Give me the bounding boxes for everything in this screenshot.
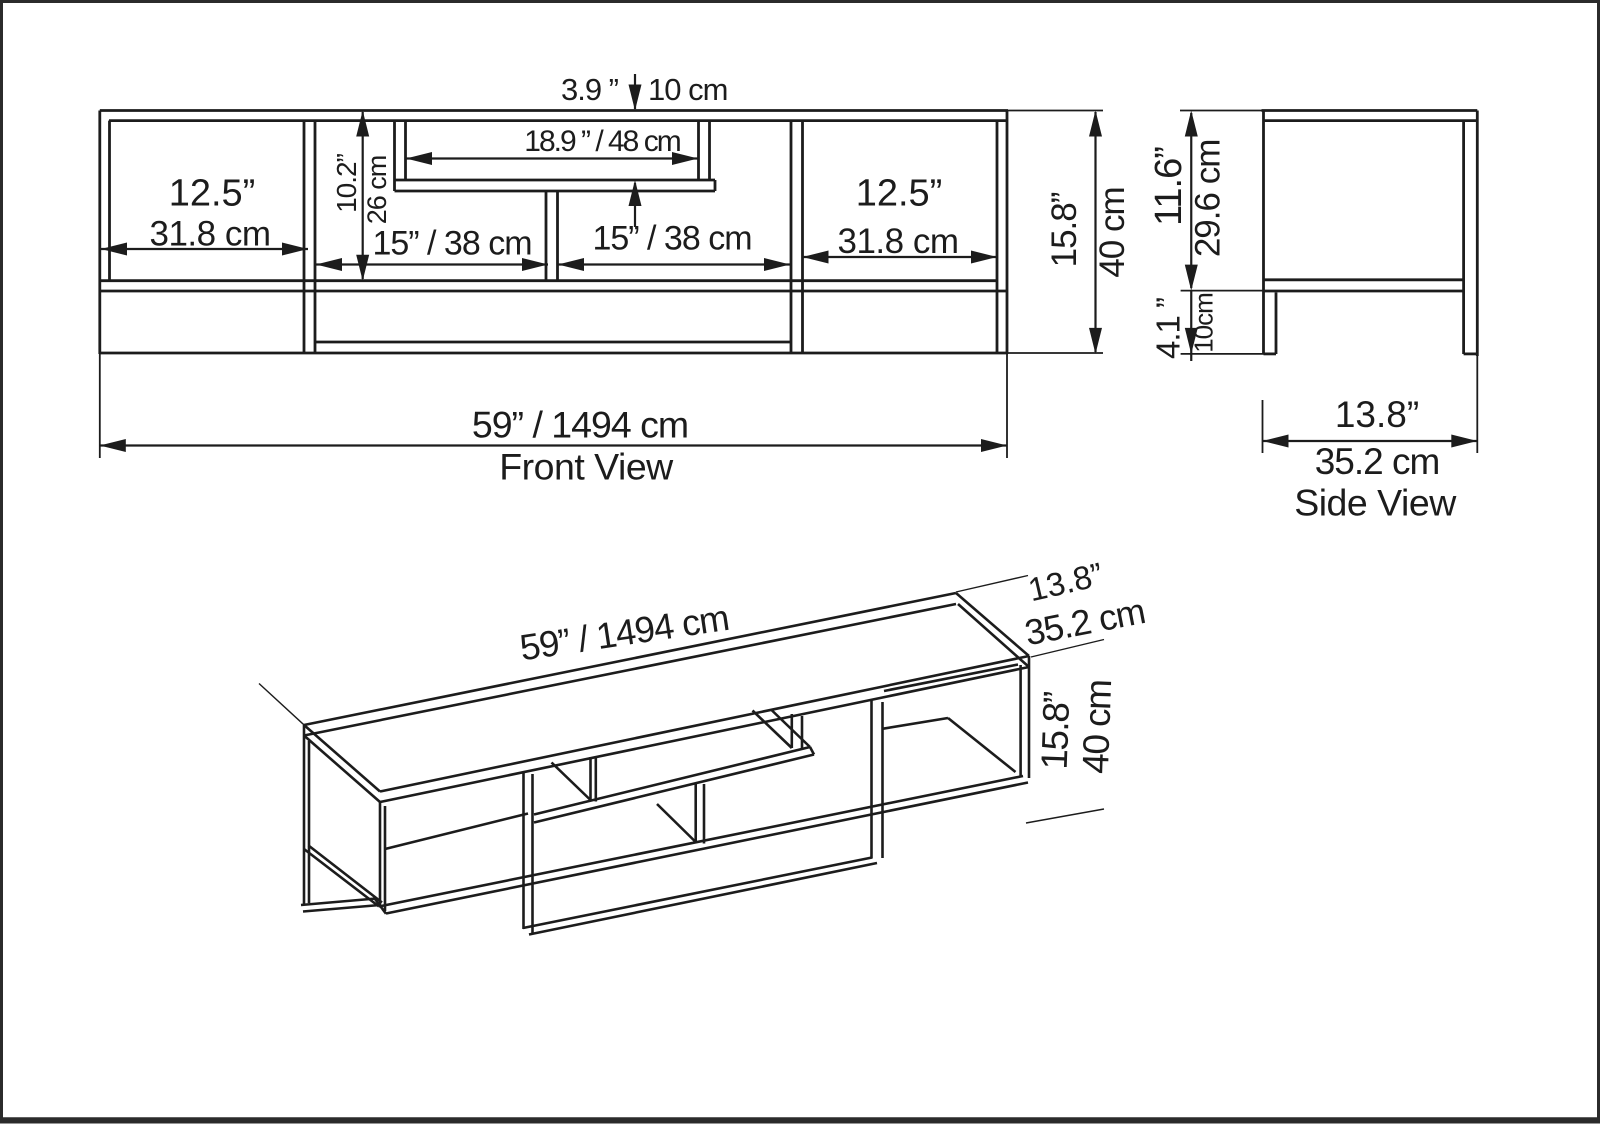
- svg-text:29.6 cm: 29.6 cm: [1189, 140, 1228, 258]
- svg-text:59” / 1494 cm: 59” / 1494 cm: [472, 404, 688, 446]
- svg-text:13.8”: 13.8”: [1335, 394, 1419, 435]
- svg-text:18.9 ” / 48 cm: 18.9 ” / 48 cm: [524, 125, 680, 158]
- svg-text:15” / 38 cm: 15” / 38 cm: [592, 220, 751, 258]
- svg-text:Front View: Front View: [499, 446, 674, 488]
- svg-text:26 cm: 26 cm: [362, 156, 392, 225]
- svg-text:Side View: Side View: [1294, 482, 1457, 524]
- svg-text:31.8 cm: 31.8 cm: [838, 222, 959, 261]
- svg-text:3.9 ”: 3.9 ”: [561, 72, 619, 107]
- svg-text:15.8”: 15.8”: [1045, 192, 1084, 267]
- svg-text:12.5”: 12.5”: [856, 173, 943, 215]
- svg-text:10.2”: 10.2”: [331, 153, 362, 212]
- svg-text:4.1 ”: 4.1 ”: [1150, 298, 1187, 359]
- svg-text:40 cm: 40 cm: [1093, 187, 1132, 277]
- svg-text:10cm: 10cm: [1188, 293, 1218, 353]
- svg-text:40 cm: 40 cm: [1075, 680, 1119, 775]
- svg-text:10 cm: 10 cm: [648, 72, 727, 107]
- svg-text:35.2 cm: 35.2 cm: [1315, 441, 1440, 482]
- svg-text:12.5”: 12.5”: [169, 173, 256, 215]
- svg-text:15” / 38 cm: 15” / 38 cm: [372, 225, 531, 263]
- svg-text:31.8 cm: 31.8 cm: [150, 215, 271, 254]
- svg-text:15.8”: 15.8”: [1034, 692, 1078, 770]
- svg-text:11.6”: 11.6”: [1148, 147, 1190, 226]
